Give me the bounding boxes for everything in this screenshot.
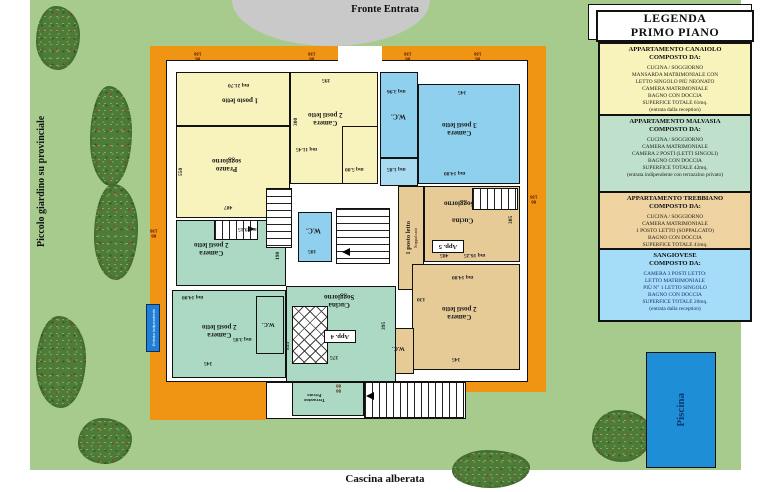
dim-app4: 375 (330, 354, 338, 360)
label-camera3-blue: Camera 3 posti letto (442, 120, 477, 137)
window-marker: 86 136 (308, 51, 316, 61)
label-camera2-green-up: Camera 2 posti letto (194, 240, 229, 257)
dim-app4-side: 395 (381, 306, 387, 330)
window-marker: 86 136 (150, 228, 158, 238)
entrance-marker-label: Entrata Indipendente (151, 309, 156, 346)
dim-camera2-yellow-top: 395 (322, 77, 330, 83)
dim-app5: 485 (440, 252, 448, 258)
dim-pranzo-bottom: 487 (224, 204, 232, 210)
room-wc-center (298, 212, 332, 262)
floor-plan-page: Fronte Entrata Piccolo giardino su provi… (0, 0, 764, 492)
legend-malvasia-title: APPARTAMENTO MALVASIA COMPOSTO DA: (602, 118, 748, 134)
area-camera2-green-low: mq 14.00 (182, 294, 203, 300)
tag-app4: App. 4 (324, 330, 356, 343)
stairs-arrow-icon (366, 392, 374, 400)
area-wc-blue: mq 3.96 (387, 88, 406, 94)
area-wc-green-low: mq 3.05 (233, 336, 252, 342)
soppalco-label: 1 posto letto (405, 221, 412, 255)
soppalco-sublabel: Soppalcato (413, 228, 418, 248)
room-closet-yellow (342, 126, 378, 184)
dim-app5-side: 305 (508, 198, 514, 224)
area-camera2-yellow: mq 11.45 (296, 146, 317, 152)
dim-camera2-green-up: 190 (275, 238, 281, 260)
building-terrace-extension (150, 392, 266, 420)
label-app5-cucina: Cucina (452, 216, 473, 224)
stairs-central-arrow-icon (342, 248, 350, 256)
label-posto1: 1 posto letto (222, 96, 258, 104)
label-terrazzino: Terrazzino Privato (304, 392, 325, 403)
label-piccolo-giardino: Piccolo giardino su provinciale (36, 75, 47, 247)
independent-entrance-marker: Entrata Indipendente (146, 304, 160, 352)
label-wc-green: W.C. (262, 320, 275, 327)
legend-trebbiano-title: APPARTAMENTO TREBBIANO COMPOSTO DA: (602, 195, 748, 211)
window-marker: 86 136 (194, 51, 202, 61)
label-pranzo: Pranzo soggiorno (212, 156, 241, 173)
label-wc-blue: W.C. (391, 112, 406, 120)
legend-sangiovese-title: SANGIOVESE COMPOSTO DA: (602, 252, 748, 268)
area-app5: mq 16.25 (464, 252, 485, 258)
label-cascina-alberata: Cascina alberata (290, 473, 480, 485)
area-closet-yellow: mq 5.00 (345, 166, 364, 172)
area-posto1: mq 21.70 (228, 82, 249, 88)
area-camera2-green-up: mq 9.15 (238, 226, 257, 232)
window-marker: 86 136 (474, 51, 482, 61)
area-camera3-blue: mq 14.80 (444, 170, 465, 176)
hedge-bottom-center (452, 450, 530, 488)
area-cell-blue: mq 1.85 (387, 166, 406, 172)
label-fronte-entrata: Fronte Entrata (300, 4, 470, 15)
pool: Piscina (646, 352, 716, 468)
label-app4: Cucina Soggiorno (324, 292, 354, 309)
dim-wc-green: 855 (285, 324, 291, 350)
legend-canaiolo-title: APPARTAMENTO CANAIOLO COMPOSTO DA: (602, 46, 748, 62)
dim-camera2-tan: 345 (452, 356, 460, 362)
window-marker: 86 136 (530, 194, 538, 204)
label-wc-center: W.C. (306, 226, 321, 234)
label-camera2-yellow: Camera 2 posti letto (308, 110, 343, 127)
legend-malvasia-body: CUCINA / SOGGIORNO CAMERA MATRIMONIALE C… (602, 137, 748, 178)
label-wc-tan: W.C. (392, 344, 405, 351)
dim-wc-center: 105 (308, 248, 316, 254)
legend-canaiolo-body: CUCINA / SOGGIORNO MANSARDA MATRIMONIALE… (602, 65, 748, 113)
label-app5-soggiorno: Soggiorno (444, 199, 474, 207)
dim-camera2-green-low: 345 (204, 360, 212, 366)
legend-section-canaiolo: APPARTAMENTO CANAIOLO COMPOSTO DA: CUCIN… (598, 42, 752, 116)
dim-terrazzino: 80 80 (336, 383, 341, 393)
window-marker: 86 136 (404, 51, 412, 61)
pool-label: Piscina (675, 393, 687, 427)
legend-section-trebbiano: APPARTAMENTO TREBBIANO COMPOSTO DA: CUCI… (598, 191, 752, 250)
entrance-gap (338, 46, 382, 61)
legend-sangiovese-body: CAMERA 3 POSTI LETTO: LETTO MATRIMONIALE… (602, 271, 748, 312)
label-camera2-green-low: Camera 2 posti letto (202, 322, 237, 339)
legend-title: LEGENDA PRIMO PIANO (596, 10, 754, 42)
area-camera2-tan: mq 14.80 (452, 274, 473, 280)
stairs-external (364, 382, 464, 418)
legend-section-malvasia: APPARTAMENTO MALVASIA COMPOSTO DA: CUCIN… (598, 114, 752, 193)
legend-section-sangiovese: SANGIOVESE COMPOSTO DA: CAMERA 3 POSTI L… (598, 248, 752, 322)
dim-camera2-yellow-side: 300 (293, 104, 299, 126)
room-terrazzino (292, 382, 364, 416)
dim-camera3-top: 345 (458, 89, 466, 95)
stairs-app4-soppalco (292, 306, 328, 364)
label-camera2-tan: Camera 2 posti letto (442, 304, 477, 321)
dim-camera2-tan-left: 130 (417, 296, 425, 302)
dim-pranzo-left: 550 (178, 146, 184, 176)
